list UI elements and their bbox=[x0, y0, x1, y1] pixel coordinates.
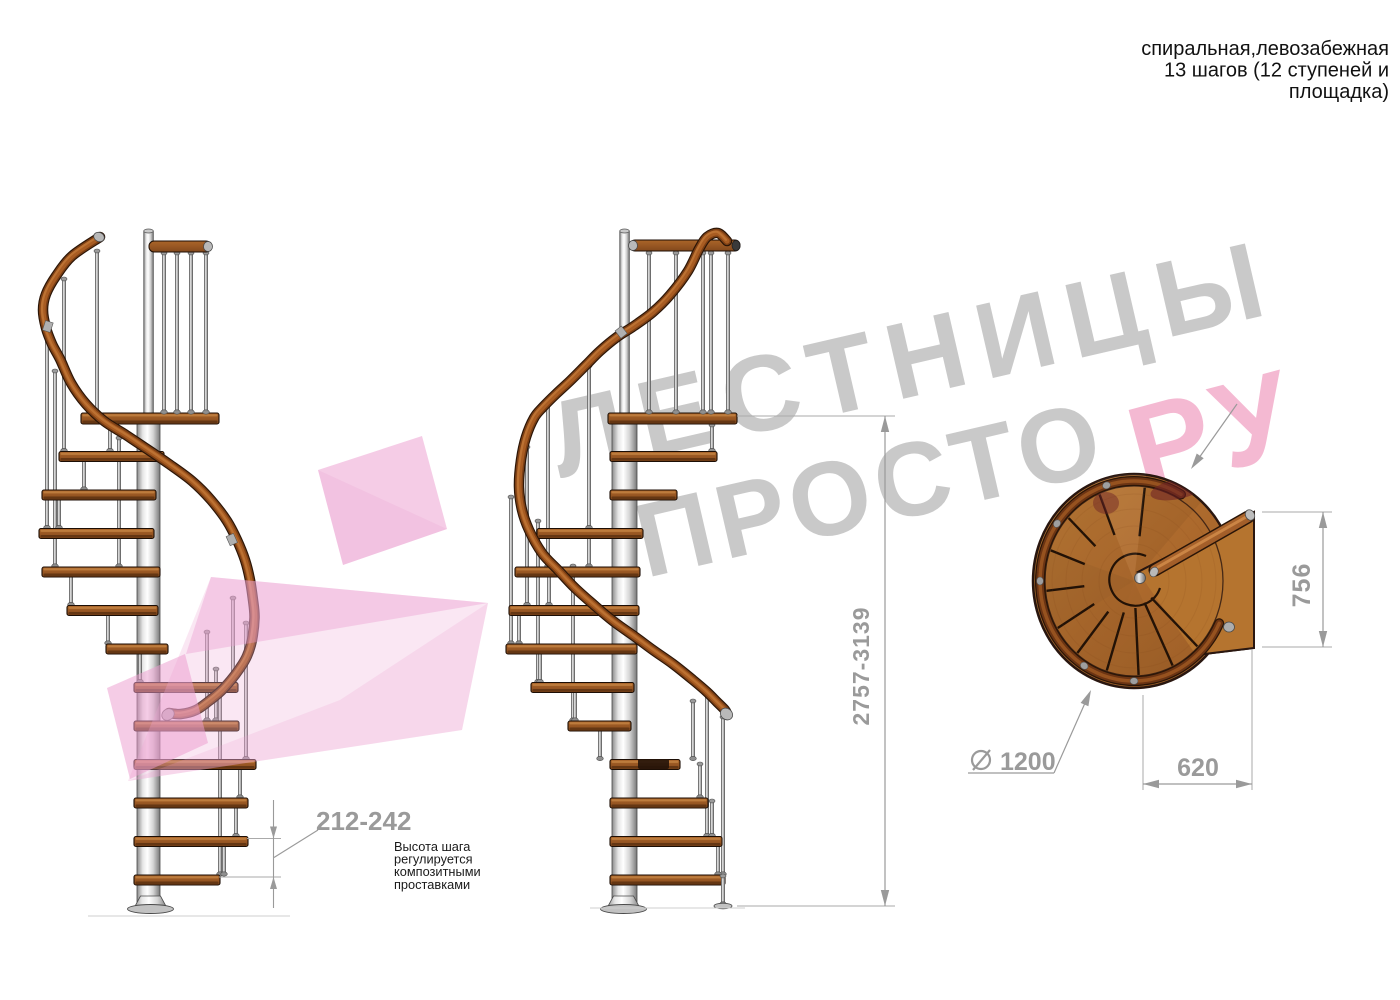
svg-text:756: 756 bbox=[1288, 563, 1316, 608]
svg-text:620: 620 bbox=[1177, 754, 1219, 782]
svg-text:спиральная,левозабежная: спиральная,левозабежная bbox=[1141, 38, 1389, 60]
svg-text:2757-3139: 2757-3139 bbox=[848, 607, 874, 726]
svg-text:212-242: 212-242 bbox=[316, 806, 411, 836]
svg-text:площадка): площадка) bbox=[1289, 81, 1389, 103]
svg-text:13 шагов (12 ступеней и: 13 шагов (12 ступеней и bbox=[1164, 60, 1389, 82]
svg-text:проставками: проставками bbox=[394, 877, 470, 892]
svg-text:1200: 1200 bbox=[1000, 748, 1056, 776]
